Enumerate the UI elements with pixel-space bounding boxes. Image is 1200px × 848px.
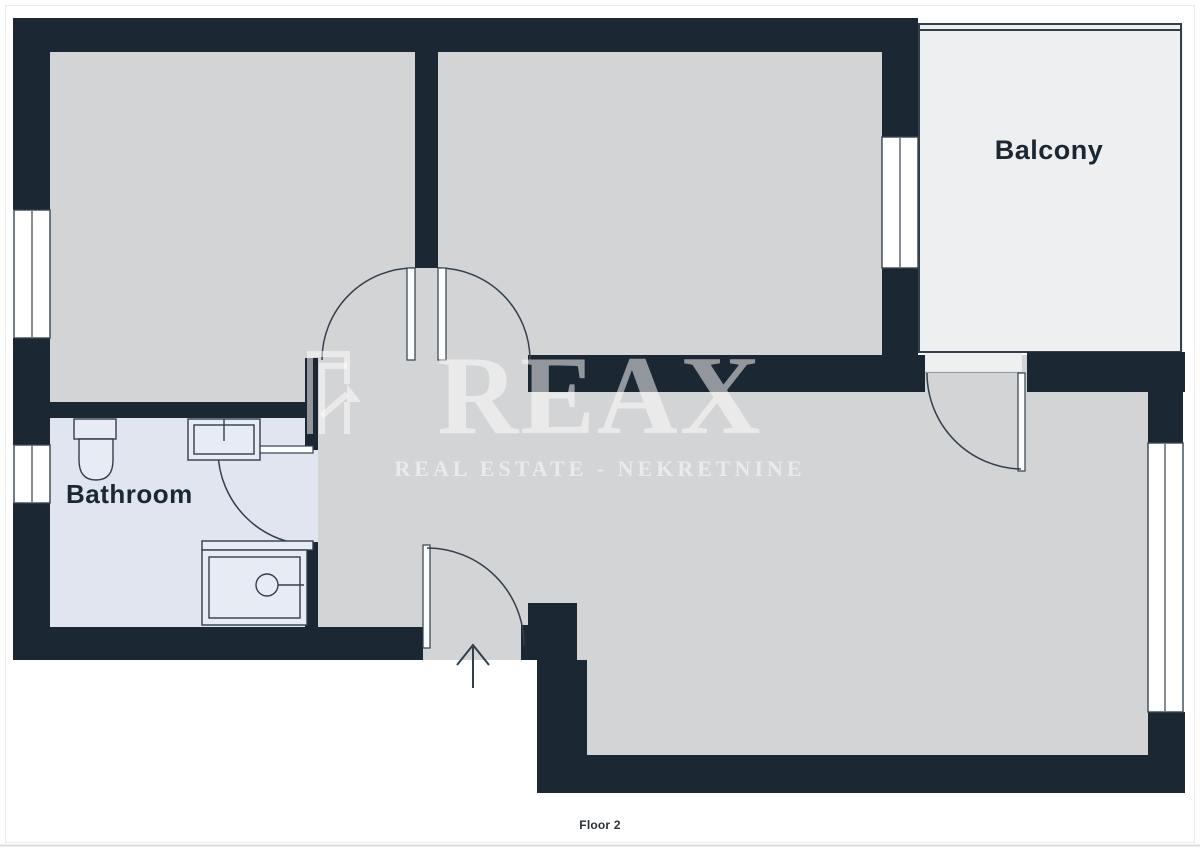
- floor-top-rooms: [50, 52, 918, 403]
- toilet: [74, 419, 116, 480]
- door-leaf: [423, 545, 430, 648]
- wall-entry-riser: [537, 660, 587, 755]
- wall-entry-block: [528, 603, 577, 660]
- shower: [202, 541, 313, 625]
- wall-right-upper: [1148, 392, 1183, 443]
- wall-bathroom-right-upper: [305, 358, 318, 450]
- wall-balcony-left-upper: [882, 52, 918, 137]
- wall-balcony-left-lower: [882, 268, 918, 355]
- door-leaf: [1018, 373, 1025, 471]
- sink: [188, 419, 260, 460]
- bathroom-label: Bathroom: [66, 479, 193, 510]
- window: [14, 445, 50, 503]
- floorplan-drawing: [0, 0, 1200, 848]
- balcony-label: Balcony: [949, 135, 1149, 166]
- wall-bedroom2-bottom: [528, 355, 925, 392]
- floorplan-page: RE AX REAL ESTATE - NEKRETNINE Balcony B…: [0, 0, 1200, 848]
- wall-bottom: [537, 755, 1185, 793]
- window: [14, 210, 50, 338]
- door-leaf: [407, 268, 415, 360]
- wall-left-mid: [13, 338, 50, 445]
- balcony-door-threshold: [925, 352, 1022, 373]
- door-leaf: [438, 268, 446, 360]
- floor-balcony: [918, 23, 1183, 352]
- wall-right-lower: [1148, 712, 1185, 755]
- window: [1148, 443, 1183, 712]
- window: [882, 137, 918, 268]
- floor-caption: Floor 2: [0, 818, 1200, 832]
- wall-balcony-bottom: [1027, 352, 1185, 392]
- wall-bedroom-divider: [415, 52, 438, 268]
- wall-top: [13, 18, 918, 52]
- floor-living-lower: [587, 660, 1148, 755]
- wall-bathroom-top: [13, 402, 318, 418]
- wall-bottom-left: [13, 627, 423, 660]
- wall-left-upper: [13, 52, 50, 210]
